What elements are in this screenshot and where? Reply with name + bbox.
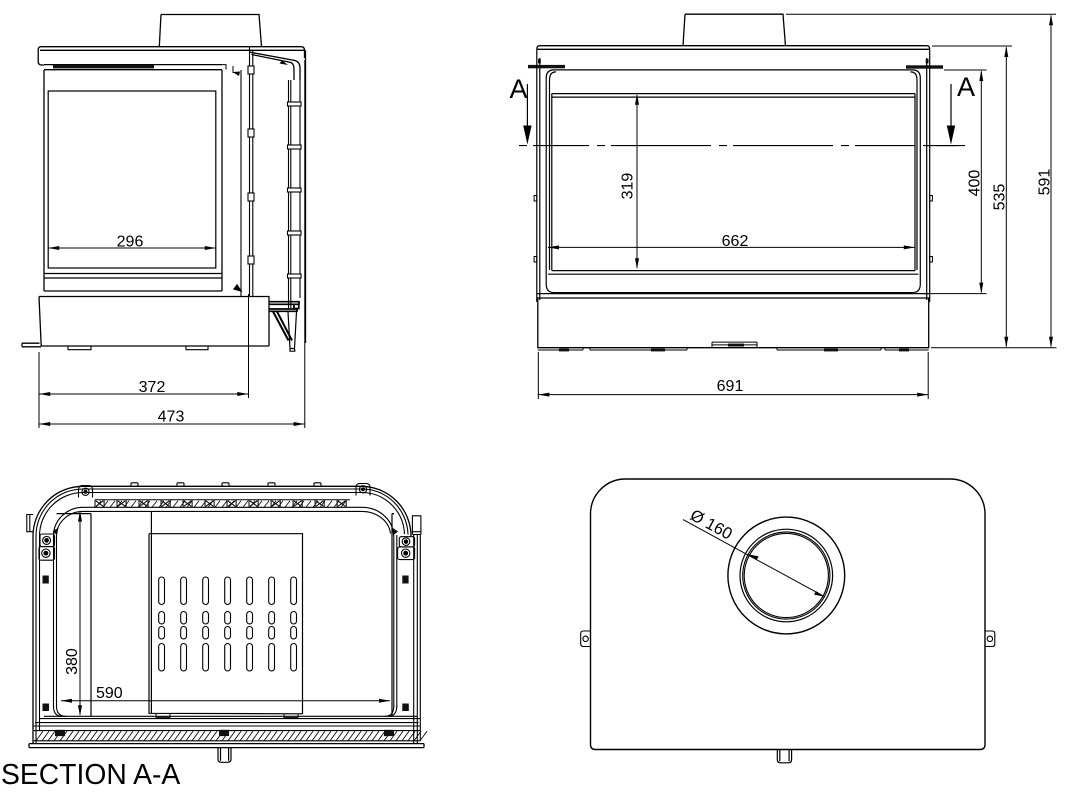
svg-text:296: 296 bbox=[117, 234, 144, 251]
svg-text:372: 372 bbox=[139, 379, 166, 396]
svg-text:662: 662 bbox=[722, 233, 749, 250]
svg-text:691: 691 bbox=[717, 378, 744, 395]
svg-text:319: 319 bbox=[620, 173, 637, 200]
svg-text:535: 535 bbox=[992, 184, 1009, 211]
svg-text:SECTION A-A: SECTION A-A bbox=[1, 758, 180, 790]
svg-text:473: 473 bbox=[158, 409, 185, 426]
svg-text:400: 400 bbox=[967, 170, 984, 197]
svg-text:Ø 160: Ø 160 bbox=[687, 506, 735, 543]
svg-text:A: A bbox=[957, 72, 975, 102]
svg-text:590: 590 bbox=[96, 685, 123, 702]
svg-text:380: 380 bbox=[64, 648, 81, 675]
svg-text:591: 591 bbox=[1037, 169, 1054, 196]
svg-text:A: A bbox=[510, 74, 528, 104]
